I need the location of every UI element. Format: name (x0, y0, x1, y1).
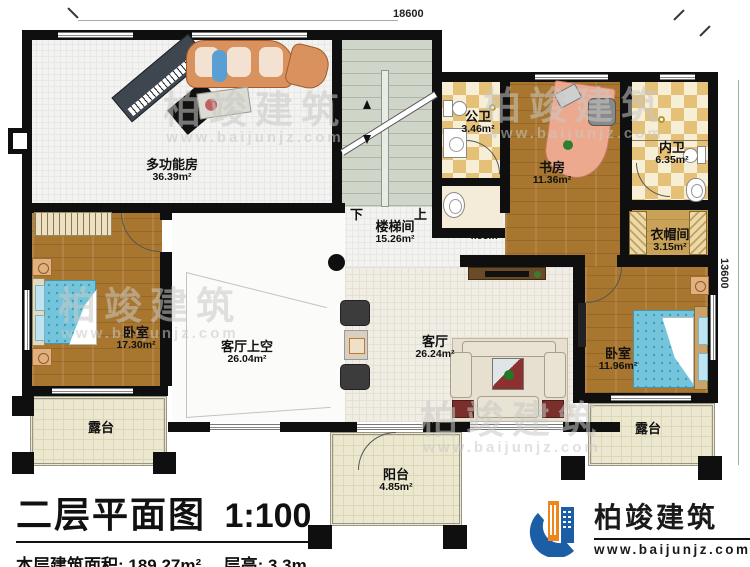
column (698, 456, 722, 480)
window-balcony-door (357, 424, 423, 430)
nightstand (690, 276, 709, 295)
dimension-line-right (738, 80, 739, 465)
window (535, 74, 608, 80)
title-underline (16, 541, 308, 543)
corner-tick (673, 9, 684, 20)
floor-height-info: 层高: 3.3m (224, 556, 307, 567)
company-name: 柏竣建筑 (594, 496, 750, 536)
coffee-table (492, 358, 524, 390)
room-label-inner-bath: 内卫6.35m² (632, 141, 712, 166)
plan-scale: 1:100 (224, 497, 311, 535)
dining-chair (340, 300, 370, 326)
bed-headboard (32, 278, 45, 346)
sink-icon (443, 192, 465, 218)
window (660, 74, 695, 80)
tv-cabinet (468, 267, 546, 280)
company-logo: 柏竣建筑 www.baijunjz.com (528, 492, 742, 560)
wall (432, 38, 442, 238)
wall (627, 200, 718, 210)
stair-rail (381, 70, 389, 207)
person-figure (212, 50, 227, 82)
wall (280, 422, 357, 432)
wall (168, 422, 210, 432)
room-label-void: 客厅上空26.04m² (187, 340, 307, 365)
wall (500, 72, 510, 213)
stair-arrow-up (363, 100, 371, 109)
floor-area-info: 本层建筑面积: 189.27m² (16, 556, 201, 567)
floor-plan-canvas: 18600 13600 (0, 0, 750, 567)
dimension-right: 13600 (718, 258, 730, 289)
wall-niche (8, 128, 32, 154)
column (153, 452, 176, 474)
sofa (477, 396, 539, 418)
window (52, 388, 133, 394)
closet-hangers (34, 212, 112, 236)
room-label-multifunction: 多功能房36.39m² (112, 158, 232, 183)
dimension-line-top (78, 20, 398, 21)
dining-chair (340, 364, 370, 390)
basin-area-label: 2.08m² (458, 176, 491, 188)
desk-chair (588, 98, 616, 126)
wall (563, 422, 620, 432)
nightstand (32, 258, 52, 276)
bed-headboard (694, 306, 708, 390)
room-label-terrace-left: 露台 (71, 421, 131, 435)
light-fixture (658, 116, 665, 123)
corridor-area-label: 4.55m² (468, 230, 501, 242)
wall (332, 38, 342, 208)
column (12, 396, 34, 416)
side-table (452, 400, 474, 418)
room-label-study: 书房11.36m² (502, 161, 602, 186)
nightstand (32, 348, 52, 366)
window (611, 395, 691, 401)
column (443, 525, 467, 549)
room-label-cloakroom: 衣帽间3.15m² (630, 228, 710, 253)
column (12, 452, 34, 474)
window (24, 290, 30, 350)
window (210, 424, 280, 430)
room-label-stairwell: 楼梯间15.26m² (345, 220, 445, 245)
room-label-bedroom-left: 卧室17.30m² (76, 326, 196, 351)
sink-icon (686, 178, 706, 202)
stair-arrow-down (363, 135, 371, 144)
window (192, 32, 307, 38)
window (710, 295, 716, 360)
wall (617, 255, 718, 267)
corner-tick (67, 7, 78, 18)
wall (160, 252, 172, 386)
plant-icon (563, 140, 573, 150)
page-title: 二层平面图 (16, 494, 206, 535)
living-void-floor (172, 213, 345, 422)
wall (423, 422, 470, 432)
window (470, 424, 563, 430)
company-url: www.baijunjz.com (594, 538, 750, 557)
window (58, 32, 133, 38)
wall (460, 255, 585, 267)
dimension-top: 18600 (393, 8, 424, 20)
room-label-balcony: 阳台4.85m² (346, 468, 446, 493)
column (561, 456, 585, 480)
room-label-living: 客厅26.24m² (375, 335, 495, 360)
round-column (328, 254, 345, 271)
room-label-bedroom-right: 卧室11.96m² (558, 347, 678, 372)
wall-tv-icon (578, 303, 586, 347)
side-table (542, 400, 564, 418)
wall (160, 210, 172, 220)
room-label-terrace-right: 露台 (618, 422, 678, 436)
company-logo-icon (528, 495, 586, 557)
corner-tick (699, 25, 710, 36)
sofa (186, 40, 294, 88)
room-label-public-bath: 公卫3.46m² (438, 110, 518, 135)
plan-title-block: 二层平面图 1:100 本层建筑面积: 189.27m² 层高: 3.3m (16, 486, 316, 567)
dining-table (344, 330, 368, 360)
